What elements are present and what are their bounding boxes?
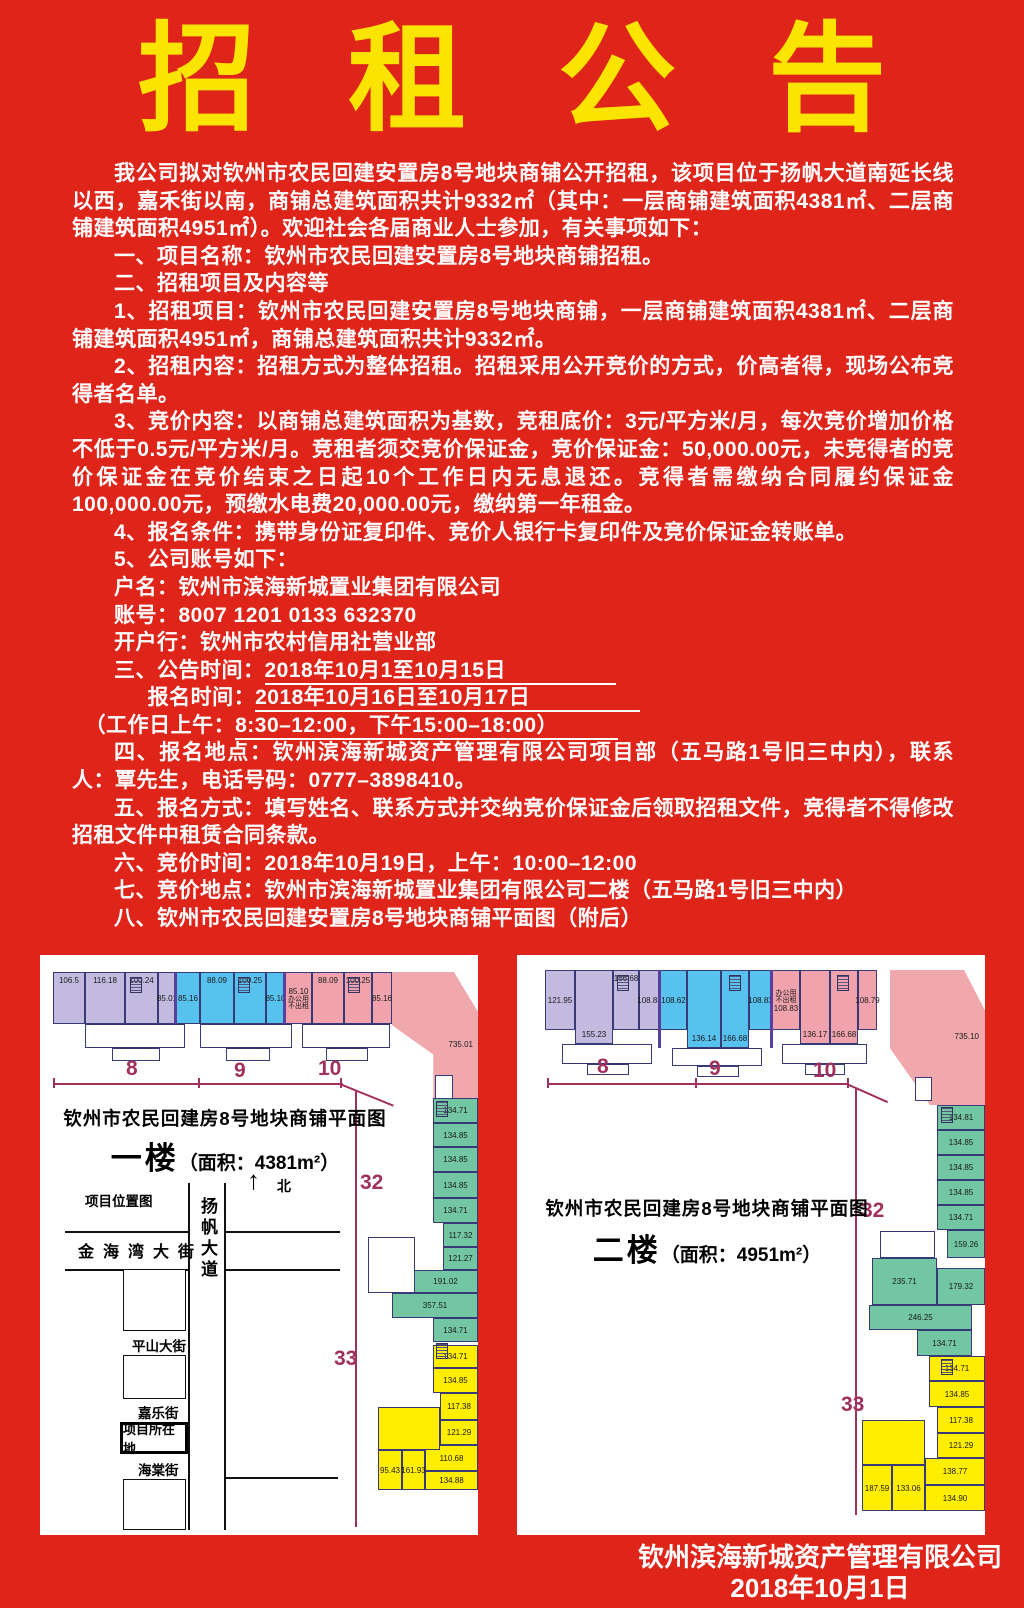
account-name: 户名：钦州市滨海新城置业集团有限公司 [72, 574, 954, 602]
shop-cell: 134.85 [433, 1123, 478, 1147]
stairs-icon [436, 1101, 448, 1117]
dim-label-9: 9 [234, 1059, 246, 1083]
shop-cell: 134.85 [937, 1130, 985, 1155]
shop-cell: 108.83 [639, 970, 660, 1030]
stairs-icon [941, 1107, 953, 1123]
intro-paragraph: 我公司拟对钦州市农民回建安置房8号地块商铺公开招租，该项目位于扬帆大道南延长线以… [72, 160, 954, 243]
item-bid-place: 七、竞价地点：钦州市滨海新城置业集团有限公司二楼（五马路1号旧三中内） [72, 877, 954, 905]
shop-cell: 179.32 [937, 1268, 985, 1305]
footer-date: 2018年10月1日 [600, 1573, 1024, 1604]
shop-area: 108.83 [774, 1005, 798, 1013]
map-road-line [188, 1183, 190, 1530]
shop-cell: 134.71 [433, 1318, 478, 1342]
shop-cell: 155.23 [575, 970, 613, 1044]
item-bid-time: 六、竞价时间：2018年10月19日，上午：10:00–12:00 [72, 850, 954, 878]
item-account-heading: 5、公司账号如下： [72, 546, 954, 574]
north-label: 北 [277, 1176, 291, 1196]
footer: 钦州滨海新城资产管理有限公司 2018年10月1日 [600, 1542, 1024, 1604]
title-char: 招 [138, 14, 256, 146]
stair-box [915, 1077, 932, 1101]
shop-area: 735.01 [449, 1040, 473, 1049]
dim-label-8: 8 [597, 1055, 609, 1079]
plan-floor-title: 一楼（面积：4381m²） [40, 1133, 410, 1178]
shop-cell: 187.59 [862, 1465, 892, 1511]
dim-label-10: 10 [813, 1059, 836, 1083]
corridor-shape [880, 1231, 935, 1258]
shop-area: 735.10 [955, 1032, 979, 1041]
working-hours-label: （工作日上午： [85, 714, 236, 737]
footer-company: 钦州滨海新城资产管理有限公司 [600, 1542, 1024, 1573]
stairs-icon [348, 977, 360, 993]
shop-cell: 246.25 [869, 1305, 972, 1330]
item-project-name: 一、项目名称：钦州市农民回建安置房8号地块商铺招租。 [72, 243, 954, 271]
office-note-line2: 不出租 [288, 1003, 309, 1011]
title-char: 公 [558, 14, 676, 146]
shop-cell: 88.09 [312, 972, 344, 1024]
building-footprint-step [226, 1048, 270, 1061]
shop-cell: 85.16 [176, 972, 200, 1024]
poster: 招 租 公 告 我公司拟对钦州市农民回建安置房8号地块商铺公开招租，该项目位于扬… [0, 0, 1024, 1608]
plan-title: 钦州市农民回建房8号地块商铺平面图 [517, 1195, 897, 1221]
north-arrow-icon: ↑ [247, 1165, 260, 1196]
shop-cell: 134.85 [929, 1381, 985, 1407]
map-street-name: 海棠街 [138, 1459, 179, 1479]
shop-cell: 134.85 [937, 1155, 985, 1180]
shop-area: 85.10 [288, 988, 308, 996]
shop-cell: 121.95 [545, 970, 575, 1030]
shop-cell: 108.79 [858, 970, 877, 1030]
shop-cell: 117.38 [440, 1393, 478, 1420]
signup-time-value: 2018年10月16日至10月17日 [255, 686, 640, 712]
map-block [123, 1355, 186, 1399]
dim-tick [847, 1078, 849, 1088]
shop-cell: 134.85 [937, 1180, 985, 1205]
shop-cell: 117.38 [937, 1407, 985, 1433]
shop-cell-unlabeled [378, 1407, 440, 1450]
dim-tick [198, 1078, 200, 1088]
corridor-shape [368, 1237, 415, 1293]
shop-cell: 88.09 [200, 972, 234, 1024]
notice-time-label: 三、公告时间： [114, 659, 265, 682]
shop-cell: 121.29 [937, 1433, 985, 1458]
plan-floor-title: 二楼（面积：4951m²） [517, 1225, 897, 1270]
working-hours-value: 8:30–12:00，下午15:00–18:00） [235, 714, 618, 740]
dim-tick [53, 1078, 55, 1088]
map-street-line [226, 1477, 338, 1479]
poster-title: 招 租 公 告 [0, 14, 1024, 146]
shop-cell: 136.17 [800, 970, 830, 1044]
corner-shop-wedge: 735.10 [890, 970, 985, 1105]
shop-cell: 161.93 [402, 1450, 425, 1490]
stairs-icon [130, 977, 142, 993]
shop-cell: 108.62 [660, 970, 687, 1030]
item-signup-place: 四、报名地点：钦州滨海新城资产管理有限公司项目部（五马路1号旧三中内），联系人：… [72, 739, 954, 794]
account-bank: 开户行：钦州市农村信用社营业部 [72, 629, 954, 657]
dim-label-10: 10 [318, 1057, 341, 1081]
floor-name: 二楼 [593, 1233, 661, 1268]
shop-cell: 134.71 [433, 1198, 478, 1223]
shop-cell: 108.83 [749, 970, 772, 1030]
floor-area: （面积：4951m²） [661, 1245, 822, 1266]
shop-cell: 134.85 [433, 1147, 478, 1172]
notice-time-line: 三、公告时间：2018年10月1至10月15日 [72, 657, 954, 685]
section-divider [658, 970, 661, 1048]
shop-cell: 159.26 [947, 1230, 985, 1258]
shop-cell: 235.71 [872, 1258, 937, 1305]
shop-cell-office: 85.10 办公用 不出租 [285, 972, 312, 1024]
item-signup-condition: 4、报名条件：携带身份证复印件、竞价人银行卡复印件及竞价保证金转账单。 [72, 519, 954, 547]
dimension-line [547, 1083, 847, 1085]
item-section2: 二、招租项目及内容等 [72, 270, 954, 298]
shop-cell: 95.43 [378, 1450, 402, 1490]
shop-cell: 121.29 [440, 1420, 478, 1445]
building-footprint [85, 1024, 185, 1048]
shop-cell: 134.85 [433, 1172, 478, 1198]
dim-label-33: 33 [841, 1393, 864, 1417]
signup-time-label: 报名时间： [148, 686, 256, 709]
project-site-box: 项目所在地 [120, 1422, 188, 1454]
dim-tick [695, 1078, 697, 1088]
shop-cell: 134.90 [925, 1485, 985, 1511]
plan-title: 钦州市农民回建房8号地块商铺平面图 [40, 1105, 410, 1131]
dimension-line-vertical [855, 1089, 857, 1515]
shop-cell: 121.27 [443, 1247, 478, 1270]
shop-cell: 138.77 [925, 1458, 985, 1485]
dim-tick [547, 1078, 549, 1088]
stairs-icon [729, 975, 741, 991]
office-note-line1: 办公用 [776, 990, 797, 998]
shop-cell: 136.14 [687, 970, 721, 1048]
floor-plan-1f: 106.5 116.18 100.24 85.01 85.16 88.09 10… [40, 955, 478, 1535]
floor-name: 一楼 [111, 1141, 179, 1176]
working-hours-line: （工作日上午：8:30–12:00，下午15:00–18:00） [72, 712, 954, 740]
shop-cell: 134.71 [937, 1205, 985, 1230]
shop-cell-unlabeled [862, 1420, 925, 1465]
shop-cell: 357.51 [392, 1293, 478, 1318]
shop-cell: 117.32 [443, 1223, 478, 1247]
map-block [123, 1479, 186, 1530]
stairs-icon [617, 975, 629, 991]
map-street-line [226, 1231, 340, 1233]
floor-plan-2f: 121.95 155.23 166.68 108.83 108.62 136.1… [517, 955, 985, 1535]
item-signup-method: 五、报名方式：填写姓名、联系方式并交纳竞价保证金后领取招租文件，竞得者不得修改招… [72, 795, 954, 850]
building-footprint [302, 1024, 390, 1048]
section-divider [770, 970, 773, 1048]
building-footprint [200, 1024, 292, 1048]
dimension-line-diagonal [846, 1083, 888, 1103]
item-rental-project: 1、招租项目：钦州市农民回建安置房8号地块商铺，一层商铺建筑面积4381㎡、二层… [72, 298, 954, 353]
location-map-label: 项目位置图 [85, 1190, 153, 1210]
shop-cell: 133.06 [892, 1465, 925, 1511]
title-char: 租 [348, 14, 466, 146]
item-plan-attachment: 八、钦州市农民回建安置房8号地块商铺平面图（附后） [72, 905, 954, 933]
dim-label-33: 33 [334, 1347, 357, 1371]
map-street-name: 平山大街 [132, 1335, 186, 1355]
signup-time-line: 报名时间：2018年10月16日至10月17日 [72, 684, 954, 712]
title-char: 告 [768, 14, 886, 146]
map-block [123, 1269, 186, 1331]
shop-cell: 134.85 [433, 1368, 478, 1393]
stairs-icon [941, 1359, 953, 1375]
item-bidding-content: 3、竞价内容：以商铺总建筑面积为基数，竞租底价：3元/平方米/月，每次竞价增加价… [72, 408, 954, 518]
shop-cell: 106.5 [53, 972, 85, 1024]
stairs-icon [238, 977, 250, 993]
account-number: 账号：8007 1201 0133 632370 [72, 602, 954, 630]
item-rental-content: 2、招租内容：招租方式为整体招租。招租采用公开竞价的方式，价高者得，现场公布竞得… [72, 353, 954, 408]
shop-cell-office: 办公用 不出租 108.83 [772, 970, 800, 1030]
shop-cell: 191.02 [413, 1270, 478, 1293]
map-street-line [226, 1269, 340, 1271]
shop-cell: 134.71 [929, 1356, 985, 1381]
office-note-line1: 办公用 [288, 996, 309, 1004]
stairs-icon [837, 975, 849, 991]
dim-label-9: 9 [709, 1057, 721, 1081]
notice-time-value: 2018年10月1至10月15日 [265, 659, 616, 685]
shop-cell: 134.71 [917, 1330, 972, 1356]
map-street-line [65, 1231, 188, 1233]
dim-label-8: 8 [126, 1057, 138, 1081]
shop-cell: 134.88 [425, 1471, 478, 1490]
shop-cell: 85.16 [372, 972, 392, 1024]
announcement-body: 我公司拟对钦州市农民回建安置房8号地块商铺公开招租，该项目位于扬帆大道南延长线以… [72, 160, 954, 933]
dimension-line-diagonal [339, 1083, 393, 1106]
map-street-name: 金海湾大街 [78, 1238, 203, 1262]
stairs-icon [436, 1343, 448, 1359]
shop-cell: 116.18 [85, 972, 125, 1024]
